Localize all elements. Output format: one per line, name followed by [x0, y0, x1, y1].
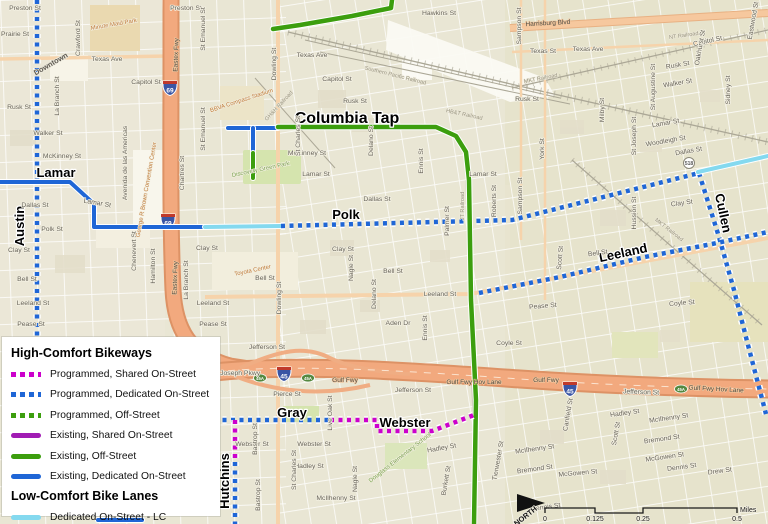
- map-label: Bell St: [255, 275, 275, 282]
- legend-panel: High-Comfort Bikeways Programmed, Shared…: [2, 337, 220, 516]
- map-label: Chartres St: [179, 156, 186, 190]
- map-label: La Branch St: [183, 260, 190, 299]
- scalebar-tick-label: 0.125: [586, 516, 604, 523]
- map-label: Coyle St: [496, 340, 522, 347]
- map-label: Rusk St: [7, 104, 31, 111]
- map-label: Sampson St: [517, 177, 524, 214]
- svg-text:45: 45: [280, 374, 288, 381]
- map-label: Crawford St: [75, 20, 82, 56]
- map-label: Ennis St: [422, 315, 429, 340]
- map-label: McIlhenny St: [316, 495, 355, 502]
- legend-item-label: Programmed, Shared On-Street: [50, 369, 196, 380]
- map-label: Nagle St: [348, 255, 355, 281]
- legend-swatch-existing-shared: [11, 433, 41, 438]
- map-label: Eastex Fwy: [172, 37, 180, 72]
- street-name-label: Austin: [12, 206, 27, 247]
- legend-swatch-programmed-dedicated: [11, 392, 41, 397]
- legend-item-label: Programmed, Dedicated On-Street: [50, 389, 209, 400]
- map-label: Leeland St: [424, 291, 457, 298]
- map-label: Live Oak St: [327, 395, 334, 430]
- map-label: La Branch St: [54, 76, 61, 115]
- scalebar-tick-label: 0.25: [636, 516, 650, 523]
- legend-title-low-comfort: Low-Comfort Bike Lanes: [11, 489, 220, 503]
- highway-shield-icon: 45A: [302, 374, 315, 382]
- map-label: Bastrop St: [252, 423, 259, 455]
- map-label: Walker St: [33, 130, 62, 137]
- map-label: Gulf Fwy: [533, 377, 559, 384]
- map-label: Dowling St: [271, 48, 278, 81]
- map-label: Eastex Fwy: [171, 260, 179, 295]
- legend-item-label: Existing, Off-Street: [50, 451, 136, 462]
- legend-item-label: Dedicated On-Street - LC: [50, 512, 166, 523]
- svg-text:518: 518: [685, 161, 694, 167]
- legend-item: Dedicated On-Street - LC: [11, 507, 220, 524]
- map-label: Rusk St: [515, 96, 539, 103]
- map-label: Webster St: [297, 441, 331, 448]
- map-label: Texas Ave: [92, 56, 123, 63]
- map-label: Texas Ave: [297, 52, 328, 59]
- map-label: Gulf Fwy Hov Lane: [446, 379, 502, 386]
- legend-item: Existing, Shared On-Street: [11, 426, 220, 447]
- legend-swatch-programmed-shared: [11, 372, 41, 377]
- map-label: Capitol St: [322, 76, 352, 83]
- svg-text:45: 45: [566, 389, 574, 396]
- map-label: Sampson St: [516, 7, 523, 44]
- bikeway-polk-lc-dedicated: [205, 226, 281, 227]
- map-label: McKinney St: [288, 150, 326, 157]
- scalebar-tick-label: 0: [543, 516, 547, 523]
- map-label: Avenida de las Americas: [122, 125, 129, 200]
- legend-item-label: Existing, Shared On-Street: [50, 430, 172, 441]
- map-label: Preston St: [9, 5, 41, 12]
- map-label: York St: [539, 138, 546, 160]
- highway-shield-icon: 45A: [675, 385, 688, 393]
- map-canvas[interactable]: 6969454551845A45A45A Columbia TapPolkLam…: [0, 0, 768, 524]
- scalebar-unit: Miles: [740, 507, 757, 514]
- street-name-label: Webster: [379, 415, 430, 430]
- highway-shield-icon: 518: [684, 158, 695, 169]
- legend-title-high-comfort: High-Comfort Bikeways: [11, 346, 220, 360]
- legend-item-label: Programmed, Off-Street: [50, 410, 160, 421]
- map-label: Roberts St: [491, 185, 498, 217]
- legend-swatch-lc-dedicated: [11, 515, 41, 520]
- map-label: Hadley St: [294, 463, 324, 470]
- map-label: Jefferson St: [623, 388, 659, 396]
- legend-item: Programmed, Off-Street: [11, 405, 220, 426]
- map-label: Leeland St: [17, 300, 50, 307]
- map-label: Clay St: [8, 247, 30, 254]
- map-label: Hamilton St: [150, 248, 157, 283]
- map-label: Texas Ave: [573, 46, 604, 53]
- map-label: McKinney St: [43, 153, 81, 160]
- scalebar-tick-label: 0.5: [732, 516, 742, 523]
- map-label: Preston St: [170, 5, 202, 12]
- legend-swatch-programmed-offstreet: [11, 413, 41, 418]
- map-label: Sidney St: [725, 75, 732, 104]
- map-label: St Joseph St: [631, 117, 638, 156]
- legend-item-label: Existing, Dedicated On-Street: [50, 471, 186, 482]
- map-label: Jefferson St: [395, 387, 431, 394]
- legend-item: Programmed, Shared On-Street: [11, 364, 220, 385]
- map-label: Rusk St: [343, 98, 367, 105]
- map-label: Clay St: [332, 246, 354, 253]
- map-label: Bastrop St: [255, 479, 262, 511]
- map-label: Prairie St: [1, 31, 29, 38]
- map-label: Bell St: [383, 268, 403, 275]
- map-label: Delano St: [368, 126, 375, 156]
- street-name-label: Columbia Tap: [295, 110, 400, 127]
- legend-item: Programmed, Dedicated On-Street: [11, 385, 220, 406]
- legend-swatch-existing-offstreet: [11, 454, 41, 459]
- map-label: St Emanuel St: [200, 7, 207, 51]
- map-label: Texas St: [530, 48, 556, 55]
- map-label: St Charles St: [295, 116, 302, 156]
- map-label: Dallas St: [21, 202, 48, 209]
- legend-item: Existing, Off-Street: [11, 446, 220, 467]
- map-label: St Emanuel St: [200, 107, 207, 151]
- map-label: Pease St: [199, 321, 227, 328]
- map-label: Delano St: [371, 279, 378, 309]
- svg-text:45A: 45A: [677, 387, 685, 392]
- legend-swatch-existing-dedicated: [11, 474, 41, 479]
- map-label: Dowling St: [276, 282, 283, 315]
- map-label: Palmer St: [444, 206, 451, 236]
- map-label: Dallas St: [363, 196, 390, 203]
- map-label: JT Railroad: [460, 192, 466, 221]
- svg-text:45A: 45A: [304, 376, 312, 381]
- map-label: St Charles St: [291, 450, 298, 490]
- map-label: Hawkins St: [422, 10, 456, 17]
- map-label: Aden Dr: [386, 320, 412, 327]
- map-label: St Augustine St: [650, 64, 657, 111]
- map-label: Hussion St: [631, 196, 638, 229]
- map-label: Lamar St: [302, 171, 330, 178]
- svg-text:69: 69: [166, 88, 174, 95]
- map-label: Pease St: [17, 321, 45, 328]
- map-label: Clay St: [196, 245, 218, 252]
- map-label: Nagle St: [352, 466, 359, 492]
- street-name-label: Lamar: [36, 165, 75, 180]
- map-label: Pierce St: [273, 391, 301, 398]
- map-label: Capitol St: [131, 79, 161, 86]
- map-label: Lamar St: [469, 171, 497, 178]
- map-label: Jefferson St: [249, 344, 285, 351]
- legend-item: Existing, Dedicated On-Street: [11, 467, 220, 488]
- map-label: Milby St: [599, 98, 606, 122]
- street-name-label: Polk: [332, 207, 360, 222]
- map-label: Polk St: [41, 226, 63, 233]
- map-label: Ennis St: [418, 148, 425, 173]
- map-label: Gulf Fwy: [332, 377, 358, 384]
- map-label: Leeland St: [197, 300, 230, 307]
- street-name-label: Gray: [277, 405, 307, 420]
- map-label: Bell St: [17, 276, 37, 283]
